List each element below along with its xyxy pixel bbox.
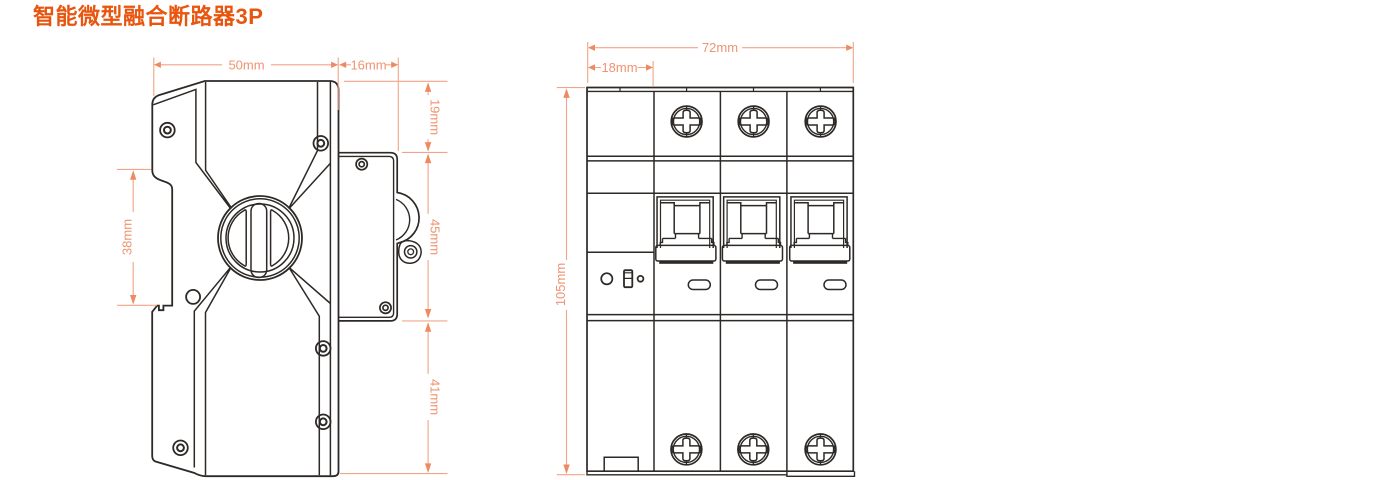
svg-text:38mm: 38mm (120, 219, 135, 255)
svg-text:16mm: 16mm (350, 57, 386, 72)
svg-text:19mm: 19mm (427, 99, 442, 135)
svg-text:105mm: 105mm (553, 263, 568, 306)
svg-text:50mm: 50mm (228, 57, 264, 72)
svg-text:45mm: 45mm (427, 219, 442, 255)
svg-text:18mm: 18mm (601, 60, 637, 75)
svg-text:72mm: 72mm (702, 40, 738, 55)
svg-text:41mm: 41mm (427, 379, 442, 415)
